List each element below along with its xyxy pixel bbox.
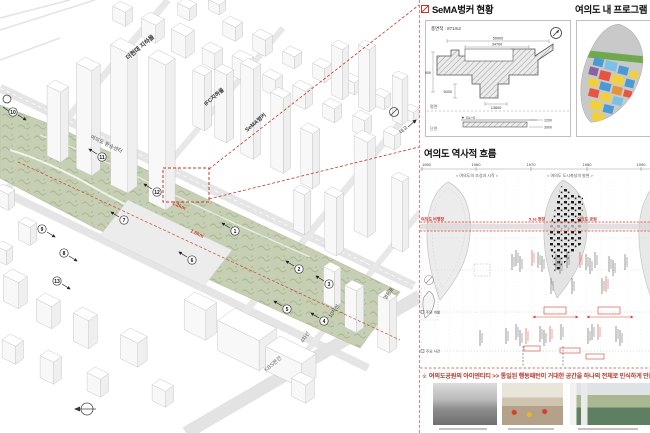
svg-text:1980: 1980 (583, 162, 593, 167)
svg-text:2: 2 (298, 267, 301, 273)
island-1970s (544, 180, 587, 298)
svg-text:1200: 1200 (544, 119, 552, 123)
svg-text:5000: 5000 (444, 90, 452, 94)
band-label-park: 여의도 공원 (577, 216, 597, 222)
svg-text:3: 3 (328, 282, 331, 288)
plan-label: 평면 (430, 103, 438, 109)
svg-text:5: 5 (286, 307, 289, 313)
sema-panel-title: SeMA벙커 현황 (432, 2, 493, 16)
photo-caption-bar (508, 428, 554, 430)
rail-lines (0, 0, 95, 60)
svg-text:6: 6 (191, 258, 194, 264)
gl-label: ▼ GL+0 (461, 116, 475, 120)
svg-text:1: 1 (234, 229, 237, 235)
section-label: 단면 (430, 125, 438, 131)
phase-label-1: < 여의도의 조성과 시작 > (456, 172, 499, 178)
red-hatch-legend-icon (421, 5, 429, 13)
island-1950s (427, 182, 490, 300)
svg-text:3000: 3000 (544, 126, 552, 130)
svg-text:11: 11 (99, 155, 105, 161)
photo-caption-bar (578, 428, 638, 430)
svg-text:13: 13 (54, 279, 60, 285)
band-label-plaza: 5.16 광장 (529, 216, 546, 222)
year-axis: 1950 1960 1970 1980 1990 < 여의도의 조성과 시작 >… (420, 162, 650, 178)
history-timeline: 1950 1960 1970 1980 1990 < 여의도의 조성과 시작 >… (420, 160, 650, 372)
sema-area-label: 총면적 : 871m2 (431, 25, 461, 32)
svg-text:50000: 50000 (493, 37, 504, 41)
north-compass-icon (74, 403, 96, 415)
row-label-events: 주요 사건 (426, 349, 440, 354)
program-map (576, 20, 650, 137)
svg-text:13600: 13600 (491, 106, 502, 110)
island-1990s-partial (639, 182, 650, 300)
svg-text:9: 9 (41, 227, 44, 233)
row-label-developments: 주요 개발 (426, 310, 441, 315)
axonometric-site-map: 더현대 지하몰IFC지하몰SeMA벙커여의도 환승센터KBS본관10차선4차선영… (0, 0, 420, 433)
caption-prefix-icon: ※ (422, 374, 427, 380)
svg-text:1970: 1970 (527, 162, 537, 167)
photo-caption-bar (439, 428, 487, 430)
svg-text:1950: 1950 (422, 162, 432, 167)
history-section-title: 여의도 역사적 흐름 (424, 146, 496, 160)
svg-text:4: 4 (323, 319, 326, 325)
svg-text:1960: 1960 (472, 162, 482, 167)
presentation-board: 더현대 지하몰IFC지하몰SeMA벙커여의도 환승센터KBS본관10차선4차선영… (0, 0, 650, 433)
svg-text:34700: 34700 (492, 43, 503, 47)
bunker-section-bar (463, 122, 527, 127)
identity-caption: ※여의도공원의 아이덴티티 >> 통일된 행동패턴이 거대한 공간을 하나의 전… (422, 371, 650, 380)
photo-airfield-aerial (433, 383, 497, 425)
svg-text:8: 8 (63, 251, 66, 257)
bottom-connectors (420, 346, 650, 368)
photo-crowd-event (570, 383, 650, 425)
sema-bunker-diagram: 총면적 : 871m2 50000 34700 11900 5000 13600… (425, 20, 571, 137)
photo-plaza-parade (502, 383, 563, 425)
svg-text:10: 10 (10, 110, 16, 116)
svg-text:11900: 11900 (425, 71, 431, 75)
band-label-airfield: 여의도 비행장 (421, 216, 445, 222)
program-panel-title: 여의도 내 프로그램 (575, 2, 647, 16)
svg-text:7: 7 (123, 218, 126, 224)
svg-text:12: 12 (154, 190, 160, 196)
phase-label-2: < 여의도 도시축성의 발현 > (547, 172, 594, 178)
svg-text:1990: 1990 (637, 162, 647, 167)
